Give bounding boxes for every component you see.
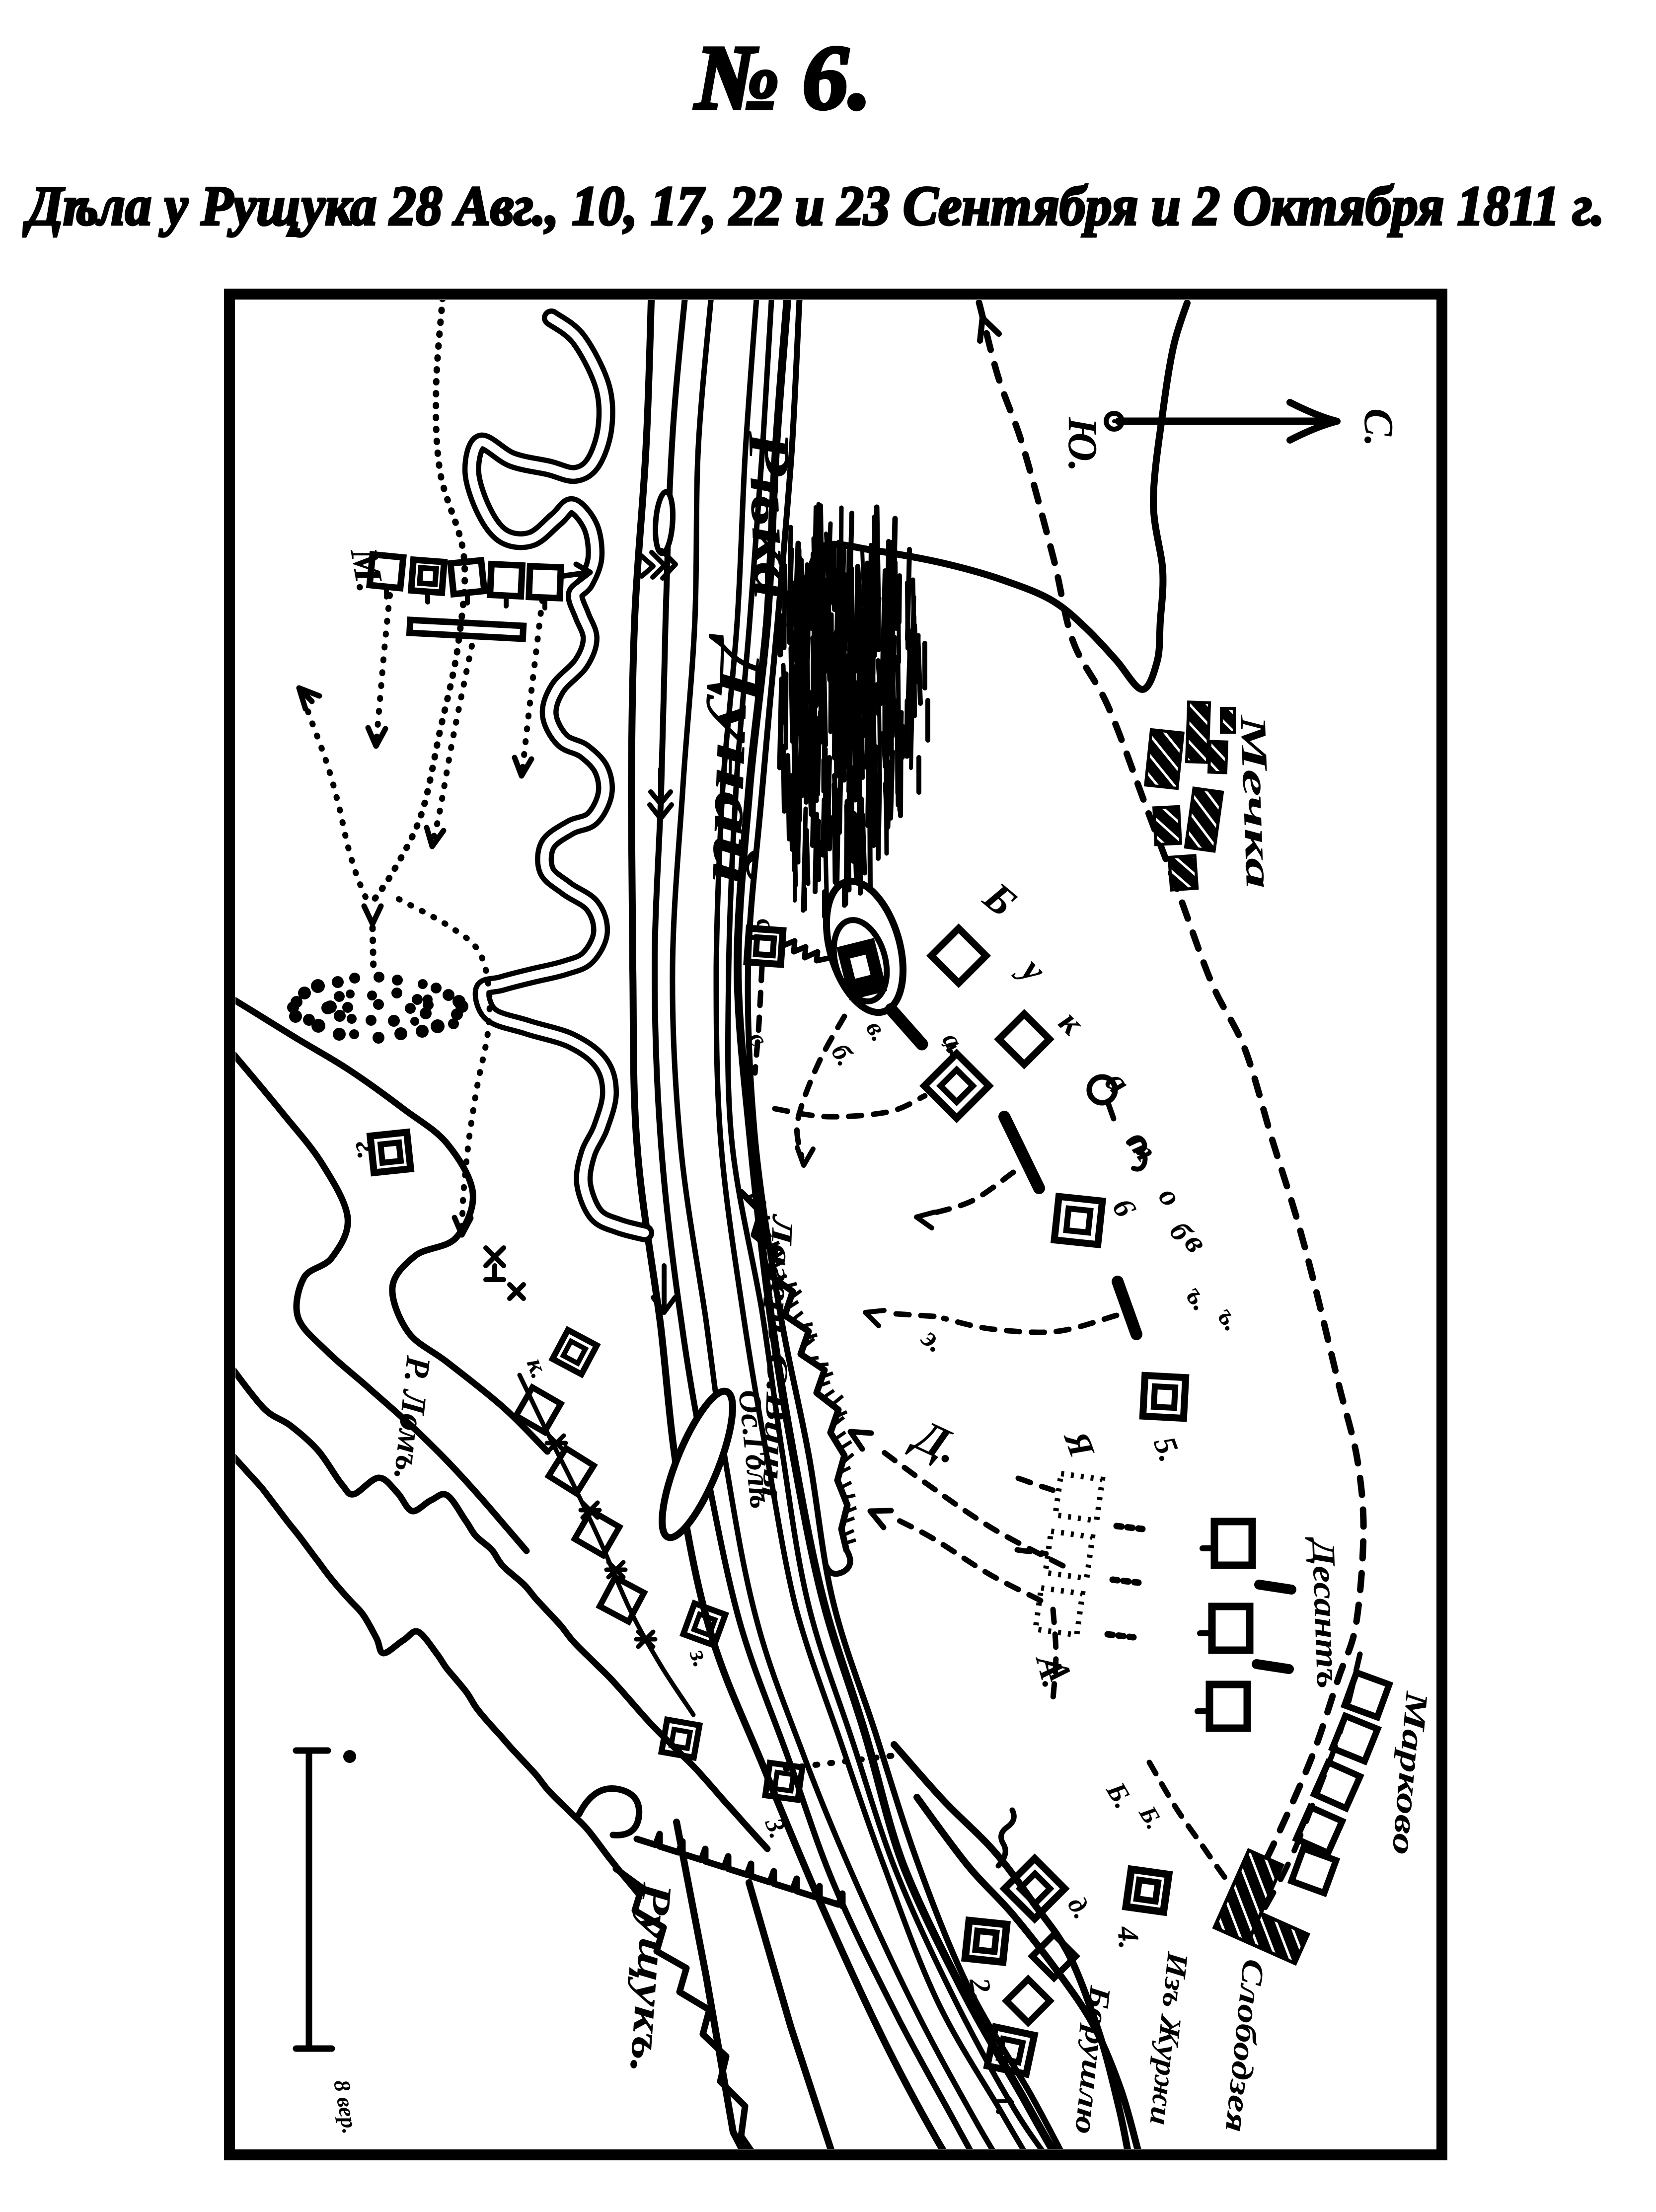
- svg-text:С.: С.: [1355, 408, 1402, 447]
- svg-text:М.: М.: [342, 543, 392, 596]
- svg-text:№ 6.: № 6.: [694, 27, 871, 129]
- svg-text:4.: 4.: [1111, 1924, 1146, 1950]
- svg-text:Дунай: Дунай: [700, 634, 773, 886]
- svg-text:Десантъ: Десантъ: [1305, 1536, 1347, 1689]
- svg-text:Мечка: Мечка: [1232, 713, 1279, 889]
- svg-text:Дѣла у Рущука 28 Авг., 10, 17,: Дѣла у Рущука 28 Авг., 10, 17, 22 и 23 С…: [23, 175, 1604, 237]
- svg-text:Ю.: Ю.: [1059, 417, 1106, 472]
